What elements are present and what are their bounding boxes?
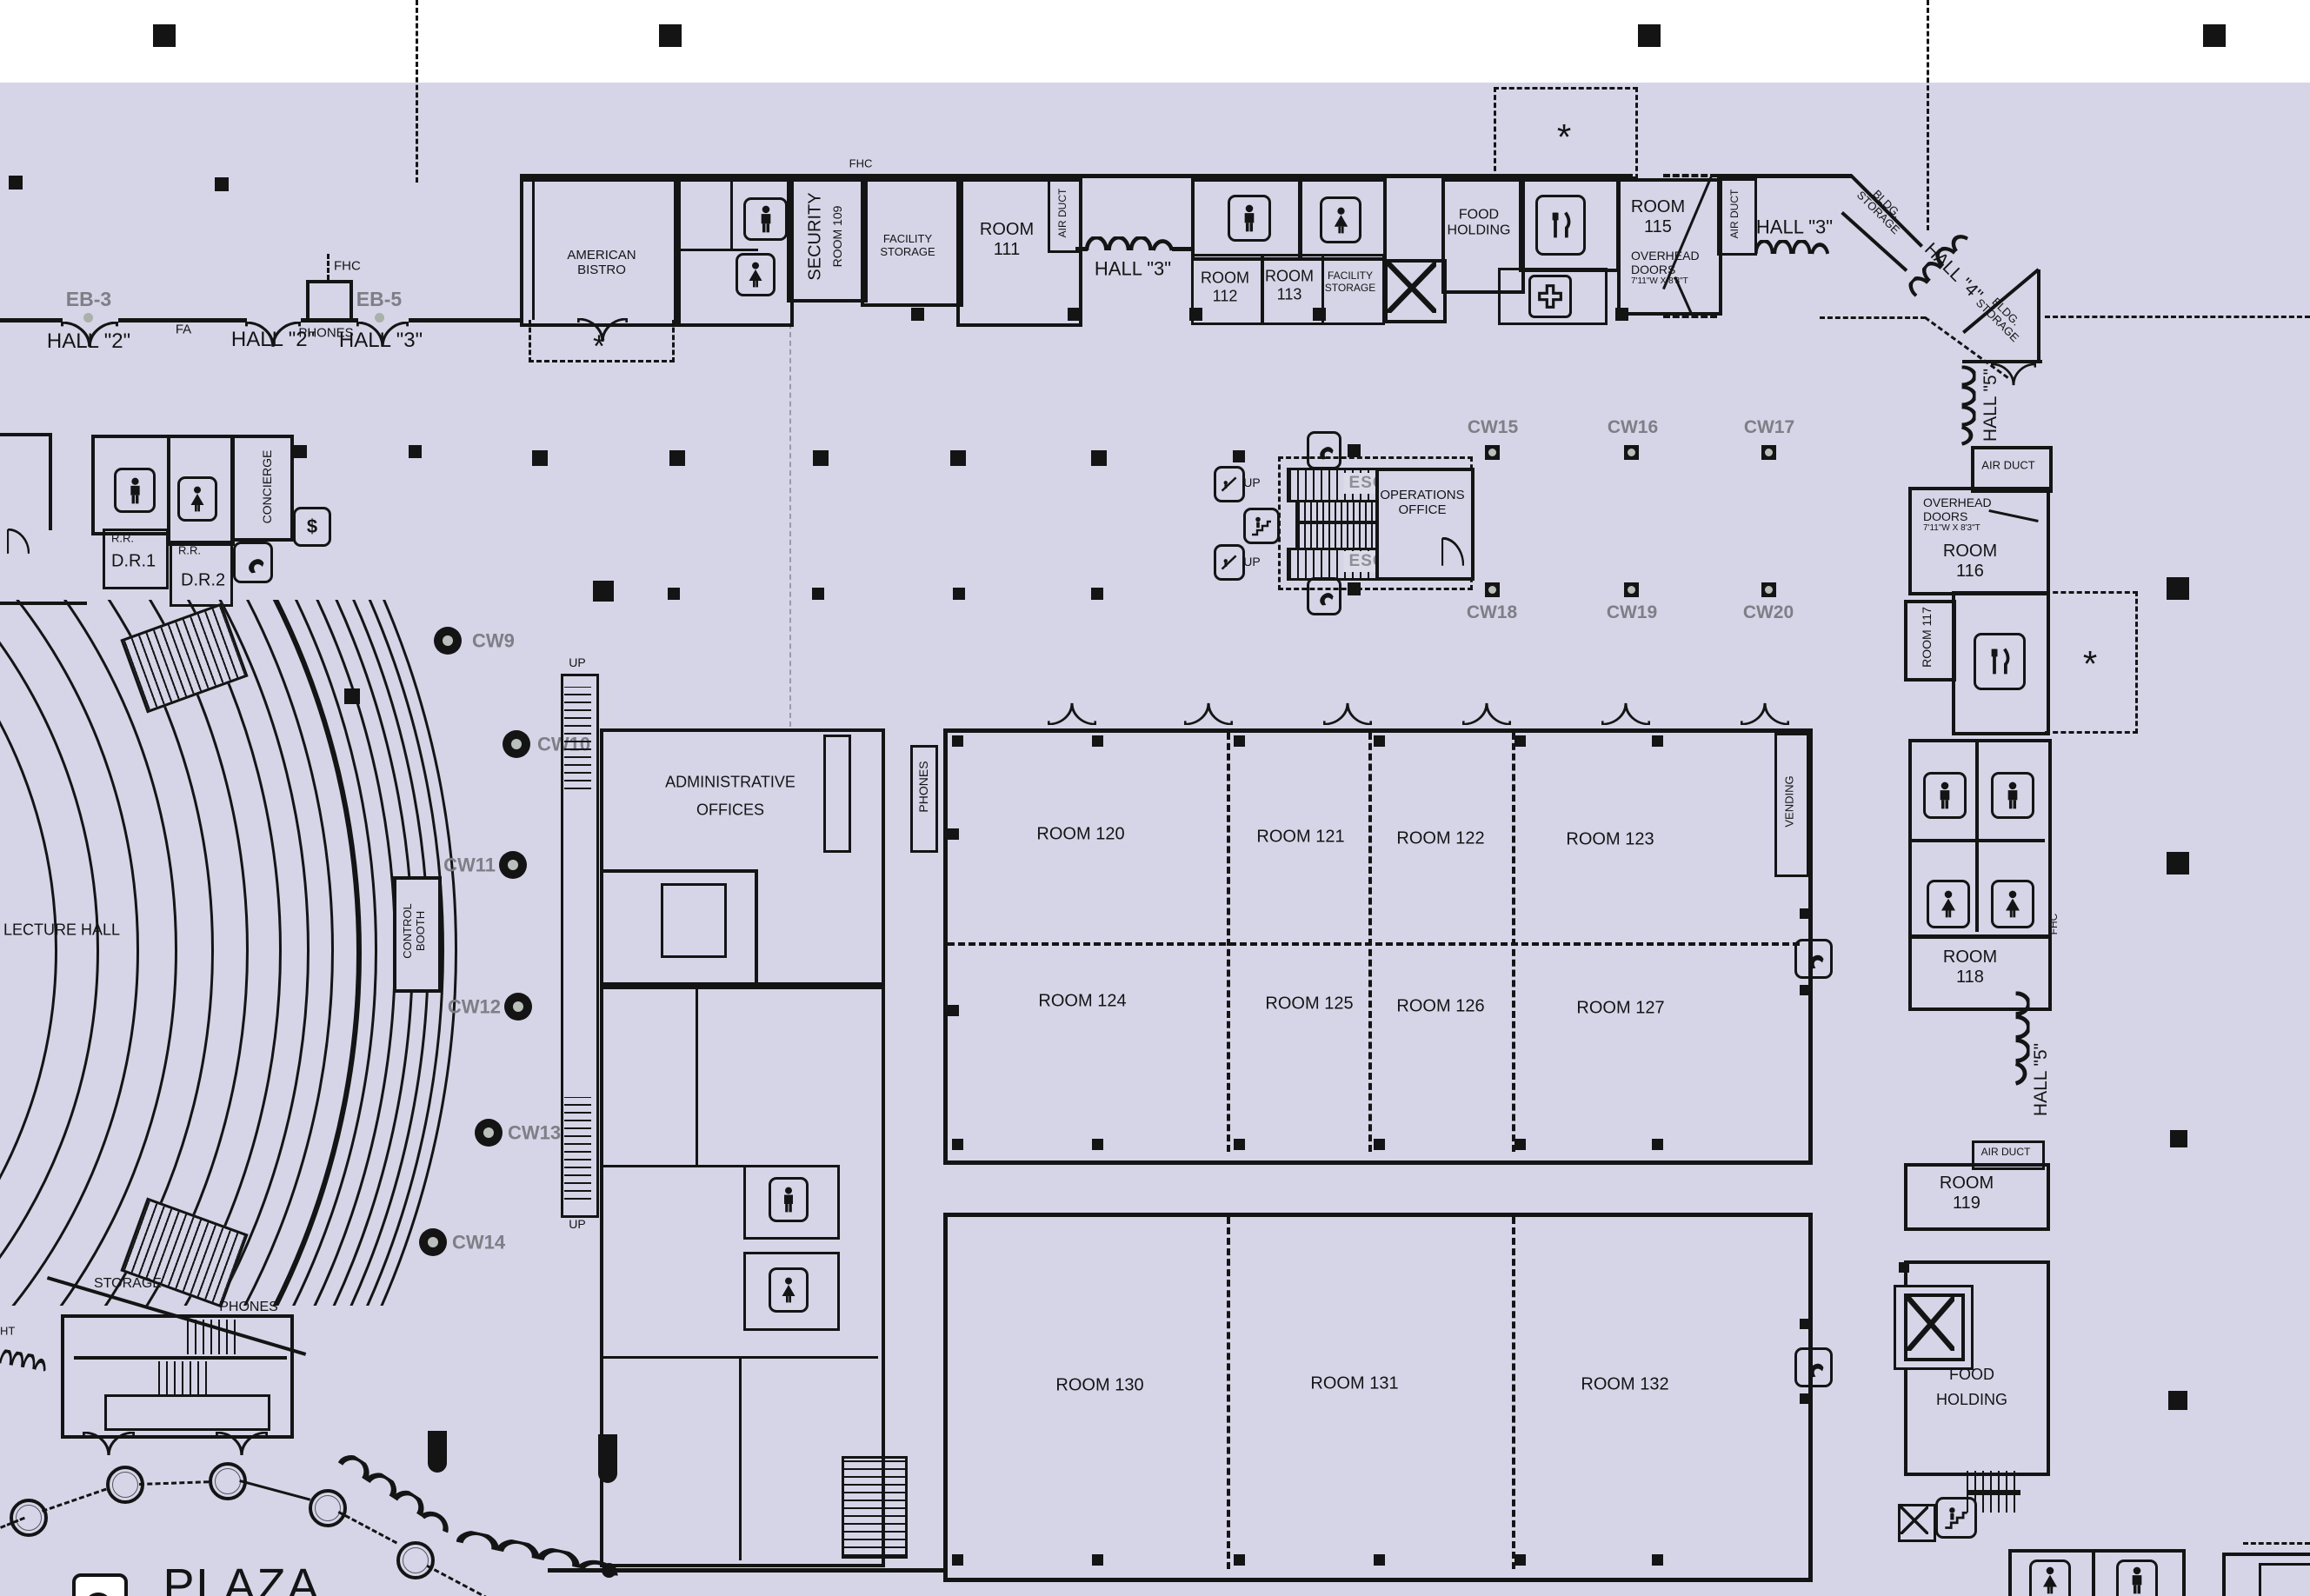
column-marker xyxy=(669,450,685,466)
food-service-icon xyxy=(1535,195,1586,256)
column-marker xyxy=(1348,582,1361,595)
wall xyxy=(2037,269,2040,363)
women-restroom-icon xyxy=(1927,880,1970,928)
column-marker xyxy=(812,588,824,600)
label-room109: ROOM 109 xyxy=(830,206,844,268)
label-up: UP xyxy=(1243,555,1260,569)
label-hall5-mid: HALL "5" xyxy=(2031,1043,2052,1116)
women-restroom-icon xyxy=(736,253,776,296)
label-concierge: CONCIERGE xyxy=(260,450,274,524)
double-door-icon xyxy=(1323,702,1372,725)
column-marker xyxy=(953,588,965,600)
column-marker xyxy=(1092,1554,1103,1566)
label-hall2-left: HALL "2" xyxy=(47,329,130,354)
label-hall3-right: HALL "3" xyxy=(1756,216,1833,237)
men-restroom-icon xyxy=(1228,195,1271,242)
label-room111: ROOM111 xyxy=(980,220,1034,260)
stairs-person-icon xyxy=(1935,1497,1977,1539)
label-air-duct-c: AIR DUCT xyxy=(1981,460,2034,473)
label-rr-a: R.R. xyxy=(111,533,134,546)
property-line xyxy=(416,0,418,183)
label-room131: ROOM 131 xyxy=(1310,1374,1398,1394)
label-phones-vertical: PHONES xyxy=(916,761,930,812)
column-marker xyxy=(1234,1139,1245,1150)
plaza-column xyxy=(309,1489,347,1527)
label-room115: ROOM115 xyxy=(1631,197,1685,237)
telephone-icon xyxy=(1794,939,1833,979)
telephone-icon xyxy=(1794,1347,1833,1387)
asterisk: * xyxy=(593,328,605,363)
property-line xyxy=(2045,316,2310,318)
asterisk: * xyxy=(2083,643,2097,685)
wall xyxy=(409,318,523,323)
stairs xyxy=(158,1361,207,1394)
men-restroom-icon xyxy=(2116,1559,2158,1596)
column-marker xyxy=(409,445,422,458)
double-door-icon xyxy=(1741,702,1789,725)
column-marker xyxy=(948,828,959,840)
label-facility-storage-b: FACILITYSTORAGE xyxy=(1325,270,1375,295)
column-marker xyxy=(1800,985,1810,995)
label-cw15: CW15 xyxy=(1468,417,1518,438)
wall xyxy=(676,249,758,251)
room-divider xyxy=(948,942,1800,946)
label-edge-fragment: HT xyxy=(0,1326,15,1339)
cw18-marker xyxy=(1485,582,1500,597)
cw12-marker xyxy=(504,993,532,1021)
column-marker xyxy=(9,176,23,190)
women-restroom-icon xyxy=(177,476,217,522)
column-marker xyxy=(1514,1139,1526,1150)
stairs-person-icon xyxy=(1243,508,1280,544)
label-room113: ROOM113 xyxy=(1265,267,1314,303)
phones-alcove xyxy=(306,280,353,320)
label-air-duct-a: AIR DUCT xyxy=(1056,189,1068,238)
room-divider xyxy=(1512,1217,1515,1569)
property-line xyxy=(1927,0,1929,230)
column-marker xyxy=(1514,735,1526,747)
cw16-marker xyxy=(1624,445,1639,460)
women-restroom-icon xyxy=(2029,1559,2071,1596)
column-marker xyxy=(1374,735,1385,747)
hall-doors-icon xyxy=(2015,992,2030,1086)
column-marker xyxy=(952,1139,963,1150)
column-marker xyxy=(2167,852,2189,874)
column-marker xyxy=(950,450,966,466)
label-cw17: CW17 xyxy=(1744,417,1794,438)
label-room120: ROOM 120 xyxy=(1036,825,1124,845)
column-marker xyxy=(532,450,548,466)
column-marker xyxy=(1800,908,1810,919)
wall xyxy=(600,1165,749,1167)
label-cw12: CW12 xyxy=(448,995,501,1017)
label-fa: FA xyxy=(176,322,191,336)
column-marker xyxy=(948,1005,959,1016)
elevator-x-icon xyxy=(1907,1297,1954,1351)
wall xyxy=(1172,247,1193,251)
label-room116: ROOM116 xyxy=(1943,542,1997,582)
eb-sensor xyxy=(375,313,384,323)
stairs xyxy=(187,1320,237,1354)
stairs xyxy=(564,687,591,789)
wall xyxy=(49,433,52,530)
cw11-marker xyxy=(499,851,527,879)
label-dr2: D.R.2 xyxy=(181,571,225,591)
column-marker xyxy=(1348,444,1361,457)
plaza-column xyxy=(10,1499,48,1537)
hall-doors-icon xyxy=(1754,240,1829,255)
double-door-icon xyxy=(1601,702,1650,725)
label-fhc-top: FHC xyxy=(334,258,361,273)
column-marker xyxy=(952,1554,963,1566)
label-room124: ROOM 124 xyxy=(1038,992,1126,1012)
cw17-marker xyxy=(1761,445,1776,460)
label-up: UP xyxy=(1243,475,1260,489)
label-hall3-mid: HALL "3" xyxy=(1095,257,1171,279)
wall xyxy=(739,1356,742,1560)
double-door-icon xyxy=(216,1432,268,1456)
column-marker xyxy=(952,735,963,747)
column-marker xyxy=(1374,1554,1385,1566)
column-marker xyxy=(2170,1130,2187,1147)
women-restroom-icon xyxy=(1320,196,1361,243)
men-restroom-icon xyxy=(114,468,156,513)
hall-doors-icon xyxy=(1961,366,1976,446)
label-fhc-right: FHC xyxy=(2047,914,2060,935)
label-room112: ROOM112 xyxy=(1201,269,1249,304)
label-cw16: CW16 xyxy=(1608,417,1658,438)
overhead-door-dashes xyxy=(1663,315,1717,318)
column-marker xyxy=(1189,308,1202,321)
column-marker xyxy=(2168,1391,2187,1410)
column-marker xyxy=(1313,308,1326,321)
label-security: SECURITY xyxy=(806,192,826,280)
column-marker xyxy=(668,588,680,600)
label-up: UP xyxy=(569,1217,585,1231)
eb-sensor xyxy=(83,313,93,323)
telephone-icon xyxy=(1307,577,1341,615)
office xyxy=(661,883,727,958)
label-air-duct-d: AIR DUCT xyxy=(1981,1147,2031,1159)
column-marker xyxy=(1234,1554,1245,1566)
column-pillar xyxy=(598,1434,617,1483)
column-marker xyxy=(911,308,924,321)
wall xyxy=(2222,1553,2310,1556)
label-administrative-offices: ADMINISTRATIVEOFFICES xyxy=(665,768,796,825)
column-marker xyxy=(1234,735,1245,747)
cw9-marker xyxy=(434,627,462,655)
wall xyxy=(730,178,733,250)
elevator-x-icon xyxy=(1901,1506,1928,1534)
label-phones2: PHONES xyxy=(219,1300,278,1315)
label-room126: ROOM 126 xyxy=(1396,997,1484,1017)
label-air-duct-b: AIR DUCT xyxy=(1728,190,1741,239)
property-line xyxy=(2243,1542,2310,1545)
label-up: UP xyxy=(569,655,585,669)
label-cw18: CW18 xyxy=(1467,602,1517,623)
column-marker xyxy=(1091,450,1107,466)
property-line xyxy=(1820,316,1926,319)
elevator-x-icon xyxy=(1388,263,1436,313)
column-marker xyxy=(1652,1139,1663,1150)
wall xyxy=(74,1356,287,1360)
column-marker xyxy=(1068,308,1081,321)
wall xyxy=(2222,1553,2226,1596)
center-line xyxy=(789,323,791,727)
stairs xyxy=(842,1456,908,1559)
label-room121: ROOM 121 xyxy=(1256,828,1344,848)
column-marker xyxy=(1091,588,1103,600)
double-door-icon xyxy=(1184,702,1233,725)
column-marker xyxy=(1652,1554,1663,1566)
column-marker xyxy=(1652,735,1663,747)
wall xyxy=(548,1568,943,1573)
men-restroom-icon xyxy=(769,1177,809,1222)
men-restroom-icon xyxy=(1991,772,2034,819)
label-lecture-hall: LECTURE HALL xyxy=(3,921,120,940)
wall xyxy=(755,869,758,982)
double-door-icon xyxy=(83,1432,135,1456)
column-marker xyxy=(2167,577,2189,600)
door-icon xyxy=(1441,537,1464,567)
room-partial xyxy=(2259,1563,2310,1596)
column-marker xyxy=(2203,24,2226,47)
exhibit-hall-lower xyxy=(943,1213,1813,1582)
men-restroom-icon xyxy=(1923,772,1967,819)
wall xyxy=(1967,1490,2020,1495)
stair-landing xyxy=(104,1394,270,1431)
label-food-holding-a: FOODHOLDING xyxy=(1448,208,1511,240)
label-vending: VENDING xyxy=(1783,775,1796,827)
column-marker xyxy=(1092,1139,1103,1150)
label-room132: ROOM 132 xyxy=(1581,1375,1668,1395)
column-marker xyxy=(294,445,307,458)
label-storage: STORAGE xyxy=(94,1276,162,1292)
column-marker xyxy=(215,177,229,191)
label-hall5-top: HALL "5" xyxy=(1980,369,2001,442)
cw15-marker xyxy=(1485,445,1500,460)
wall xyxy=(0,318,63,323)
phone-panel xyxy=(823,735,851,853)
label-overhead-doors-b: OVERHEADDOORS 7'11"W X 8'3"T xyxy=(1923,495,1992,534)
double-door-icon xyxy=(1048,702,1096,725)
door-icon xyxy=(7,529,30,555)
label-cw19: CW19 xyxy=(1607,602,1657,623)
asterisk: * xyxy=(1557,116,1571,158)
label-room122: ROOM 122 xyxy=(1396,829,1484,849)
column-pillar xyxy=(428,1431,447,1473)
cw19-marker xyxy=(1624,582,1639,597)
label-american-bistro: AMERICANBISTRO xyxy=(567,248,636,278)
room-security-109 xyxy=(787,178,868,303)
column-marker xyxy=(1638,24,1661,47)
label-room119: ROOM119 xyxy=(1940,1174,1994,1214)
label-hall3-left: HALL "3" xyxy=(339,329,423,353)
room-divider xyxy=(1227,1217,1230,1569)
label-room125: ROOM 125 xyxy=(1265,994,1353,1014)
double-door-icon xyxy=(1462,702,1511,725)
label-rr-b: R.R. xyxy=(178,545,201,558)
food-service-icon xyxy=(1974,633,2026,690)
column-marker xyxy=(1374,1139,1385,1150)
label-operations-office: OPERATIONSOFFICE xyxy=(1380,488,1464,518)
wall xyxy=(1975,739,1979,932)
label-eb3: EB-3 xyxy=(66,288,111,310)
fhc-line xyxy=(327,254,330,280)
stairs xyxy=(564,1097,591,1200)
column-marker xyxy=(1800,1319,1810,1329)
women-restroom-icon xyxy=(769,1267,809,1313)
label-room123: ROOM 123 xyxy=(1566,830,1654,850)
exhibit-hall-upper xyxy=(943,728,1813,1165)
cw20-marker xyxy=(1761,582,1776,597)
label-eb5: EB-5 xyxy=(356,288,402,310)
kiosk-icon xyxy=(72,1573,128,1596)
label-cw14: CW14 xyxy=(452,1231,505,1253)
label-cw20: CW20 xyxy=(1743,602,1794,623)
atm-icon: $ xyxy=(293,507,331,547)
telephone-icon xyxy=(233,542,273,583)
column-marker xyxy=(153,24,176,47)
wall xyxy=(696,982,698,1167)
floor-plan: EB-3 HALL "2" FA HALL "2" PHONES FHC EB-… xyxy=(0,0,2310,1596)
label-cw9: CW9 xyxy=(472,629,515,651)
women-restroom-icon xyxy=(1991,880,2034,928)
first-aid-icon xyxy=(1528,275,1572,318)
column-marker xyxy=(813,450,829,466)
cw13-marker xyxy=(475,1119,503,1147)
label-facility-storage-a: FACILITYSTORAGE xyxy=(880,233,935,259)
hall-doors-icon xyxy=(1085,236,1174,251)
escalator-icon xyxy=(1214,466,1245,502)
column-marker xyxy=(593,581,614,602)
label-dr1: D.R.1 xyxy=(111,552,156,572)
label-plaza: PLAZA xyxy=(163,1559,320,1596)
label-room130: ROOM 130 xyxy=(1055,1376,1143,1396)
wall xyxy=(600,869,756,873)
column-marker xyxy=(659,24,682,47)
plaza-column xyxy=(396,1541,435,1579)
label-cw13: CW13 xyxy=(508,1121,561,1143)
column-marker xyxy=(1800,1393,1810,1404)
column-marker xyxy=(1233,450,1245,462)
label-control-booth: CONTROLBOOTH xyxy=(401,903,427,959)
label-room117: ROOM 117 xyxy=(1920,607,1934,668)
label-room118: ROOM118 xyxy=(1943,948,1997,988)
wall xyxy=(532,178,535,320)
label-fhc-small: FHC xyxy=(849,158,873,171)
wall xyxy=(1075,247,1088,251)
telephone-icon xyxy=(1307,431,1341,469)
label-food-holding-b: FOODHOLDING xyxy=(1936,1362,2007,1413)
atm-symbol: $ xyxy=(307,515,317,538)
men-restroom-icon xyxy=(743,197,788,241)
label-room127: ROOM 127 xyxy=(1576,999,1664,1019)
column-marker xyxy=(1514,1554,1526,1566)
cw10-marker xyxy=(503,730,530,758)
label-cw11: CW11 xyxy=(443,854,496,875)
escalator-icon xyxy=(1214,544,1245,581)
wall xyxy=(0,433,50,436)
column-marker xyxy=(1092,735,1103,747)
cw14-marker xyxy=(419,1228,447,1256)
